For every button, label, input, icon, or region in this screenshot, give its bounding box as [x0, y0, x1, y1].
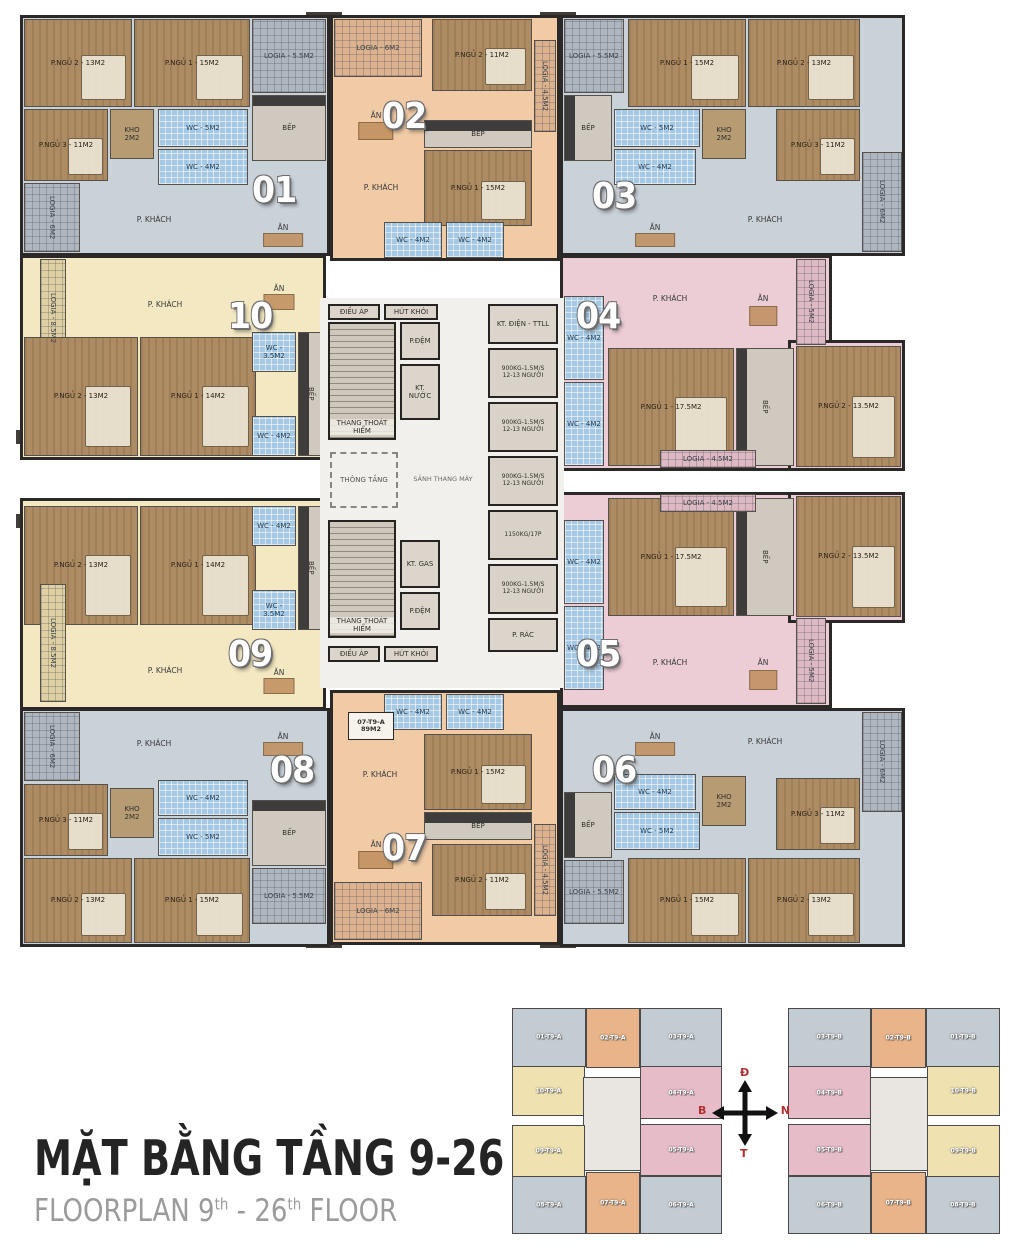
room-logia-apartment-03: LOGIA - 5.5M2 — [564, 19, 624, 93]
core-room-lift: 900KG-1.5M/S 12-13 NGƯỜI — [488, 402, 558, 452]
room-label: 1150KG/17P — [503, 532, 542, 539]
room-bedroom-apartment-06: P.NGỦ 2 - 13M2 — [748, 858, 860, 943]
room-label: SẢNH THANG MÁY — [412, 476, 473, 483]
room-wc-apartment-08: WC - 4M2 — [158, 780, 248, 816]
minimap-core — [583, 1077, 641, 1172]
core-room-service: KT. ĐIỆN - TTLL — [488, 304, 558, 344]
room-bedroom-apartment-05: P.NGỦ 1 - 17.5M2 — [608, 498, 734, 616]
room-living-apartment-07: P. KHÁCH — [338, 740, 422, 810]
minimap-unit-label: 04-T9-B — [817, 1089, 842, 1096]
room-tag-apartment-07: 07-T9-A 89M2 — [348, 712, 394, 740]
room-wc-apartment-03: WC - 5M2 — [614, 109, 700, 147]
room-bedroom-apartment-08: P.NGỦ 1 - 15M2 — [134, 858, 250, 943]
core-room-service: KT. NƯỚC — [400, 364, 440, 420]
room-label: LOGIA - 6M2 — [47, 725, 57, 768]
minimap-unit-label: 01-T9-B — [950, 1034, 975, 1041]
room-bedroom-apartment-04: P.NGỦ 2 - 13.5M2 — [796, 346, 901, 467]
room-label: P.NGỦ 2 - 13.5M2 — [817, 402, 880, 410]
page-subtitle: FLOORPLAN 9th - 26th FLOOR — [34, 1193, 541, 1229]
room-bedroom-apartment-01: P.NGỦ 3 - 11M2 — [24, 109, 108, 181]
room-label: P.NGỦ 2 - 13.5M2 — [817, 552, 880, 560]
core-room-service: P.ĐỆM — [400, 592, 440, 630]
minimap-unit-label: 03-T9-B — [817, 1034, 842, 1041]
room-label: P.NGỦ 1 - 17.5M2 — [640, 403, 703, 411]
minimap-unit-label: 08-T9-A — [536, 1202, 561, 1209]
room-bedroom-apartment-01: P.NGỦ 2 - 13M2 — [24, 19, 132, 107]
room-label: ĂN — [273, 285, 286, 294]
room-wc-apartment-10: WC - 3.5M2 — [252, 332, 296, 372]
room-label: ĂN — [370, 841, 383, 850]
core-room-service: ĐIỀU ÁP — [328, 646, 380, 662]
core-room-lift: 1150KG/17P — [488, 510, 558, 560]
room-bedroom-apartment-06: P.NGỦ 1 - 15M2 — [628, 858, 746, 943]
room-living-apartment-05: P. KHÁCH — [610, 628, 730, 698]
room-logia-apartment-02: LOGIA - 4.5M2 — [534, 40, 556, 132]
room-label: ĂN — [649, 733, 662, 742]
room-label: P.NGỦ 1 - 14M2 — [170, 392, 226, 400]
room-label: P. KHÁCH — [652, 659, 689, 668]
room-label: BẾP — [306, 561, 316, 574]
room-label: WC - 5M2 — [185, 124, 221, 132]
room-label: P. RÁC — [511, 631, 535, 639]
core-room-stairs: THANG THOÁT HIỂM — [328, 322, 396, 440]
room-label: WC - 3.5M2 — [253, 602, 295, 618]
room-label: LOGIA - 5M2 — [806, 639, 816, 682]
room-label: LOGIA - 4.5M2 — [540, 845, 550, 895]
room-kho-apartment-01: KHO 2M2 — [110, 109, 154, 159]
room-label: ĂN — [757, 659, 770, 668]
room-label: P.NGỦ 2 - 13M2 — [776, 896, 832, 904]
room-label: P.NGỦ 2 - 13M2 — [50, 896, 106, 904]
room-label: BẾP — [580, 821, 595, 829]
room-bedroom-apartment-08: P.NGỦ 2 - 13M2 — [24, 858, 132, 943]
minimap-unit-label: 03-T9-A — [668, 1034, 693, 1041]
room-label: P. KHÁCH — [362, 771, 399, 780]
room-label: LOGIA - 5.5M2 — [263, 892, 315, 900]
room-label: THÔNG TẦNG — [339, 476, 389, 484]
core-room-lift: 900KG-1.5M/S 12-13 NGƯỜI — [488, 564, 558, 614]
room-label: 900KG-1.5M/S 12-13 NGƯỜI — [501, 420, 546, 434]
room-label: 900KG-1.5M/S 12-13 NGƯỜI — [501, 582, 546, 596]
room-label: LOGIA - 4.5M2 — [682, 455, 734, 463]
room-label: ĐIỀU ÁP — [339, 650, 369, 658]
minimap-unit-label: 08-T9-B — [950, 1202, 975, 1209]
room-label: LOGIA - 6M2 — [355, 44, 400, 52]
room-label: ĂN — [277, 224, 290, 233]
apartment-number-badge-04: 04 — [576, 296, 620, 337]
room-label: LOGIA - 6M2 — [877, 180, 887, 223]
core-room-open: SẢNH THANG MÁY — [398, 440, 488, 520]
room-label: BẾP — [470, 822, 485, 830]
minimap-core — [870, 1077, 929, 1172]
room-label: P. KHÁCH — [652, 295, 689, 304]
room-living-apartment-10: P. KHÁCH — [90, 270, 240, 340]
apartment-number-badge-03: 03 — [592, 176, 636, 217]
room-label: 900KG-1.5M/S 12-13 NGƯỜI — [501, 366, 546, 380]
room-label: P. KHÁCH — [136, 740, 173, 749]
room-bedroom-apartment-04: P.NGỦ 1 - 17.5M2 — [608, 348, 734, 466]
room-bedroom-apartment-07: P.NGỦ 2 - 11M2 — [432, 844, 532, 916]
room-wc-apartment-02: WC - 4M2 — [446, 222, 504, 258]
room-living-apartment-09: P. KHÁCH — [90, 640, 240, 702]
room-label: LOGIA - 6M2 — [877, 740, 887, 783]
room-label: WC - 5M2 — [185, 833, 221, 841]
room-dining-apartment-04: ĂN — [734, 264, 792, 334]
room-label: KHO 2M2 — [715, 793, 732, 809]
room-wc-apartment-01: WC - 4M2 — [158, 149, 248, 185]
room-wc-apartment-01: WC - 5M2 — [158, 109, 248, 147]
room-wc-apartment-09: WC - 3.5M2 — [252, 590, 296, 630]
room-label: LOGIA - 6M2 — [355, 907, 400, 915]
room-label: ĐIỀU ÁP — [339, 308, 369, 316]
room-label: LOGIA - 5.5M2 — [568, 52, 620, 60]
room-bedroom-apartment-09: P.NGỦ 1 - 14M2 — [140, 506, 256, 625]
room-kitchen-apartment-05: BẾP — [736, 498, 794, 616]
room-label: ĂN — [277, 733, 290, 742]
room-label: WC - 4M2 — [395, 708, 431, 716]
room-logia-apartment-06: LOGIA - 5.5M2 — [564, 860, 624, 924]
room-living-apartment-03: P. KHÁCH — [700, 190, 830, 250]
room-label: LOGIA - 8.5M2 — [48, 293, 58, 343]
room-dining-apartment-05: ĂN — [734, 628, 792, 698]
minimap-unit-label: 07-T9-B — [886, 1200, 911, 1207]
room-wc-apartment-02: WC - 4M2 — [384, 222, 442, 258]
room-bedroom-apartment-03: P.NGỦ 3 - 11M2 — [776, 109, 860, 181]
room-label: WC - 4M2 — [256, 522, 292, 530]
room-label: P. KHÁCH — [747, 216, 784, 225]
core-room-service: HÚT KHÓI — [384, 646, 438, 662]
minimap-unit-label: 09-T9-A — [536, 1148, 561, 1155]
minimap-unit-label: 06-T9-B — [817, 1202, 842, 1209]
room-label: WC - 4M2 — [395, 236, 431, 244]
room-label: P.NGỦ 3 - 11M2 — [790, 141, 846, 149]
room-label: BẾP — [281, 829, 296, 837]
core-room-service: KT. GAS — [400, 540, 440, 588]
room-living-apartment-08: P. KHÁCH — [84, 714, 224, 774]
room-label: WC - 4M2 — [566, 420, 602, 428]
core-room-thong: THÔNG TẦNG — [330, 452, 398, 508]
room-living-apartment-01: P. KHÁCH — [84, 190, 224, 250]
room-kitchen-apartment-02: BẾP — [424, 120, 532, 148]
room-label: P.NGỦ 1 - 15M2 — [450, 768, 506, 776]
room-label: WC - 4M2 — [256, 432, 292, 440]
room-label: WC - 4M2 — [637, 163, 673, 171]
minimap-unit-label: 01-T9-A — [536, 1034, 561, 1041]
compass-letter-left: B — [698, 1104, 706, 1117]
apartment-number-badge-09: 09 — [228, 634, 272, 675]
room-bedroom-apartment-10: P.NGỦ 1 - 14M2 — [140, 337, 256, 456]
room-label: LOGIA - 5.5M2 — [568, 888, 620, 896]
room-label: BẾP — [281, 124, 296, 132]
room-label: WC - 4M2 — [457, 236, 493, 244]
minimap-unit-label: 10-T9-B — [951, 1088, 976, 1095]
subtitle-segment: th — [215, 1195, 229, 1214]
room-logia-apartment-09: LOGIA - 8.5M2 — [40, 584, 66, 702]
room-label: P.ĐỆM — [408, 607, 431, 615]
room-label: KHO 2M2 — [123, 126, 140, 142]
apartment-number-badge-02: 02 — [382, 96, 426, 137]
minimap-unit-label: 02-T9-B — [886, 1034, 911, 1041]
minimap-unit-label: 05-T9-B — [817, 1147, 842, 1154]
apartment-number-badge-08: 08 — [270, 750, 314, 791]
room-label: P. KHÁCH — [147, 301, 184, 310]
room-label: P.NGỦ 3 - 11M2 — [38, 816, 94, 824]
room-kho-apartment-06: KHO 2M2 — [702, 776, 746, 826]
room-wc-apartment-06: WC - 5M2 — [614, 812, 700, 850]
apartment-number-badge-01: 01 — [252, 170, 296, 211]
room-bedroom-apartment-01: P.NGỦ 1 - 15M2 — [134, 19, 250, 107]
room-label: BẾP — [760, 400, 770, 413]
compass-letter-right: N — [781, 1104, 790, 1117]
room-label: 07-T9-A 89M2 — [356, 719, 385, 734]
room-dining-apartment-01: ĂN — [240, 205, 326, 251]
core-room-lift: 900KG-1.5M/S 12-13 NGƯỜI — [488, 348, 558, 398]
room-label: P. KHÁCH — [747, 738, 784, 747]
room-label: ĂN — [649, 224, 662, 233]
minimap-unit-label: 05-T9-A — [668, 1147, 693, 1154]
room-label: P.NGỦ 2 - 13M2 — [50, 59, 106, 67]
subtitle-segment: FLOORPLAN 9 — [34, 1193, 215, 1229]
room-kho-apartment-03: KHO 2M2 — [702, 109, 746, 159]
room-label: WC - 4M2 — [566, 558, 602, 566]
room-label: P.NGỦ 2 - 13M2 — [776, 59, 832, 67]
floorplan-canvas: P.NGỦ 2 - 13M2P.NGỦ 1 - 15M2LOGIA - 5.5M… — [0, 0, 1024, 1252]
minimap-block-b: 03-T9-B02-T9-B01-T9-B04-T9-B10-T9-B05-T9… — [788, 1008, 1000, 1234]
room-label: KT. NƯỚC — [402, 384, 438, 400]
room-label: P.NGỦ 1 - 15M2 — [659, 59, 715, 67]
room-label: LOGIA - 4.5M2 — [682, 499, 734, 507]
room-wc-apartment-04: WC - 4M2 — [564, 382, 604, 466]
room-label: P.NGỦ 3 - 11M2 — [790, 810, 846, 818]
room-label: LOGIA - 5M2 — [806, 280, 816, 323]
room-label: ĂN — [273, 669, 286, 678]
room-bedroom-apartment-03: P.NGỦ 1 - 15M2 — [628, 19, 746, 107]
room-logia-apartment-02: LOGIA - 6M2 — [334, 19, 422, 77]
apartment-number-badge-07: 07 — [382, 828, 426, 869]
room-label: BẾP — [580, 124, 595, 132]
room-bedroom-apartment-08: P.NGỦ 3 - 11M2 — [24, 784, 108, 856]
room-wc-apartment-10: WC - 4M2 — [252, 416, 296, 456]
compass: Đ N T B — [702, 1068, 788, 1158]
room-wc-apartment-08: WC - 5M2 — [158, 818, 248, 856]
room-label: P.NGỦ 2 - 11M2 — [454, 876, 510, 884]
room-living-apartment-02: P. KHÁCH — [338, 150, 424, 226]
room-label: KHO 2M2 — [123, 805, 140, 821]
room-logia-apartment-08: LOGIA - 6M2 — [24, 712, 80, 781]
room-bedroom-apartment-02: P.NGỦ 1 - 15M2 — [424, 150, 532, 226]
minimap-block-a: 01-T9-A02-T9-A03-T9-A10-T9-A04-T9-A09-T9… — [512, 1008, 722, 1234]
room-logia-apartment-05: LOGIA - 5M2 — [796, 618, 826, 704]
room-label: LOGIA - 4.5M2 — [540, 61, 550, 111]
room-logia-apartment-07: LOGIA - 4.5M2 — [534, 824, 556, 916]
room-kitchen-apartment-06: BẾP — [564, 792, 612, 858]
minimap-unit-label: 09-T9-B — [951, 1148, 976, 1155]
room-label: 900KG-1.5M/S 12-13 NGƯỜI — [501, 474, 546, 488]
room-label: P.NGỦ 1 - 15M2 — [164, 896, 220, 904]
room-label: P. KHÁCH — [147, 667, 184, 676]
room-bedroom-apartment-10: P.NGỦ 2 - 13M2 — [24, 337, 138, 456]
minimap-unit-label: 02-T9-A — [600, 1034, 625, 1041]
room-label: KHO 2M2 — [715, 126, 732, 142]
room-label: P.NGỦ 2 - 13M2 — [53, 561, 109, 569]
subtitle-segment: th — [287, 1195, 301, 1214]
room-label: P.NGỦ 1 - 17.5M2 — [640, 553, 703, 561]
room-label: WC - 4M2 — [457, 708, 493, 716]
apartment-number-badge-05: 05 — [576, 634, 620, 675]
room-label: THANG THOÁT HIỂM — [330, 419, 394, 435]
minimap-unit-label: 06-T9-A — [668, 1202, 693, 1209]
room-kitchen-apartment-03: BẾP — [564, 95, 612, 161]
room-logia-apartment-08: LOGIA - 5.5M2 — [252, 868, 326, 924]
room-label: BẾP — [306, 387, 316, 400]
room-logia-apartment-07: LOGIA - 6M2 — [334, 882, 422, 940]
room-bedroom-apartment-06: P.NGỦ 3 - 11M2 — [776, 778, 860, 850]
compass-letter-bottom: T — [740, 1147, 748, 1160]
room-bedroom-apartment-02: P.NGỦ 2 - 11M2 — [432, 19, 532, 91]
room-logia-apartment-04: LOGIA - 5M2 — [796, 259, 826, 345]
core-room-lift: 900KG-1.5M/S 12-13 NGƯỜI — [488, 456, 558, 506]
room-label: WC - 4M2 — [637, 788, 673, 796]
room-wc-apartment-07: WC - 4M2 — [446, 694, 504, 730]
room-label: P.NGỦ 1 - 15M2 — [164, 59, 220, 67]
room-kitchen-apartment-07: BẾP — [424, 812, 532, 840]
room-label: THANG THOÁT HIỂM — [330, 617, 394, 633]
subtitle-segment: FLOOR — [301, 1193, 397, 1229]
room-logia-apartment-05: LOGIA - 4.5M2 — [660, 494, 756, 512]
room-bedroom-apartment-05: P.NGỦ 2 - 13.5M2 — [796, 496, 901, 617]
room-logia-apartment-06: LOGIA - 6M2 — [862, 712, 902, 812]
room-kitchen-apartment-08: BẾP — [252, 800, 326, 866]
core-room-service: P. RÁC — [488, 618, 558, 652]
room-label: LOGIA - 6M2 — [47, 196, 57, 239]
room-bedroom-apartment-07: P.NGỦ 1 - 15M2 — [424, 734, 532, 810]
room-label: ĂN — [757, 295, 770, 304]
room-label: P.NGỦ 1 - 14M2 — [170, 561, 226, 569]
room-label: WC - 4M2 — [185, 163, 221, 171]
room-kitchen-apartment-04: BẾP — [736, 348, 794, 466]
apartment-number-badge-06: 06 — [592, 750, 636, 791]
minimap-unit-label: 10-T9-A — [536, 1088, 561, 1095]
room-label: BẾP — [760, 550, 770, 563]
room-label: KT. ĐIỆN - TTLL — [496, 320, 550, 328]
room-label: P.NGỦ 1 - 15M2 — [450, 184, 506, 192]
room-label: ĂN — [370, 112, 383, 121]
room-label: WC - 5M2 — [639, 124, 675, 132]
compass-cross-icon — [712, 1080, 778, 1146]
compass-letter-top: Đ — [740, 1066, 749, 1079]
room-label: HÚT KHÓI — [393, 650, 429, 658]
page-title: MẶT BẰNG TẦNG 9-26 — [34, 1130, 504, 1187]
room-wc-apartment-09: WC - 4M2 — [252, 506, 296, 546]
room-logia-apartment-01: LOGIA - 6M2 — [24, 183, 80, 252]
core-room-service: HÚT KHÓI — [384, 304, 438, 320]
minimap-unit-label: 04-T9-A — [668, 1089, 693, 1096]
room-label: KT. GAS — [406, 560, 435, 568]
room-bedroom-apartment-03: P.NGỦ 2 - 13M2 — [748, 19, 860, 107]
room-label: WC - 5M2 — [639, 827, 675, 835]
room-label: P.NGỦ 3 - 11M2 — [38, 141, 94, 149]
room-label: WC - 4M2 — [185, 794, 221, 802]
room-label: LOGIA - 5.5M2 — [263, 52, 315, 60]
room-label: P.NGỦ 2 - 13M2 — [53, 392, 109, 400]
room-label: WC - 3.5M2 — [253, 344, 295, 360]
room-logia-apartment-04: LOGIA - 4.5M2 — [660, 450, 756, 468]
apartment-number-badge-10: 10 — [228, 296, 272, 337]
room-kitchen-apartment-01: BẾP — [252, 95, 326, 161]
core-room-service: P.ĐỆM — [400, 322, 440, 360]
minimap-unit-label: 07-T9-A — [600, 1200, 625, 1207]
subtitle-segment: - 26 — [228, 1193, 287, 1229]
room-label: P. KHÁCH — [136, 216, 173, 225]
room-living-apartment-04: P. KHÁCH — [610, 264, 730, 334]
room-label: BẾP — [470, 130, 485, 138]
room-label: P.NGỦ 1 - 15M2 — [659, 896, 715, 904]
room-label: P. KHÁCH — [363, 184, 400, 193]
room-wc-apartment-05: WC - 4M2 — [564, 520, 604, 604]
room-kho-apartment-08: KHO 2M2 — [110, 788, 154, 838]
room-label: HÚT KHÓI — [393, 308, 429, 316]
core-room-stairs: THANG THOÁT HIỂM — [328, 520, 396, 638]
core-room-service: ĐIỀU ÁP — [328, 304, 380, 320]
room-living-apartment-06: P. KHÁCH — [700, 712, 830, 772]
room-logia-apartment-01: LOGIA - 5.5M2 — [252, 19, 326, 93]
room-label: LOGIA - 8.5M2 — [48, 618, 58, 668]
room-logia-apartment-03: LOGIA - 6M2 — [862, 152, 902, 252]
room-label: P.ĐỆM — [408, 337, 431, 345]
room-label: P.NGỦ 2 - 11M2 — [454, 51, 510, 59]
